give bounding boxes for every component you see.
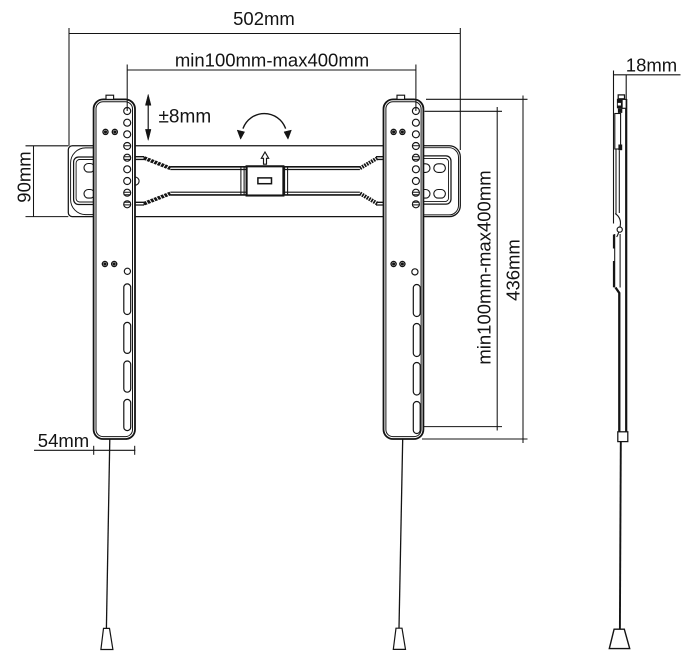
svg-text:±8mm: ±8mm — [159, 107, 212, 128]
svg-text:18mm: 18mm — [626, 55, 677, 76]
svg-text:min100mm-max400mm: min100mm-max400mm — [474, 170, 495, 364]
svg-text:436mm: 436mm — [503, 239, 524, 301]
svg-text:90mm: 90mm — [14, 151, 35, 202]
svg-text:min100mm-max400mm: min100mm-max400mm — [175, 50, 369, 71]
svg-text:502mm: 502mm — [233, 8, 295, 29]
svg-text:54mm: 54mm — [38, 430, 89, 451]
